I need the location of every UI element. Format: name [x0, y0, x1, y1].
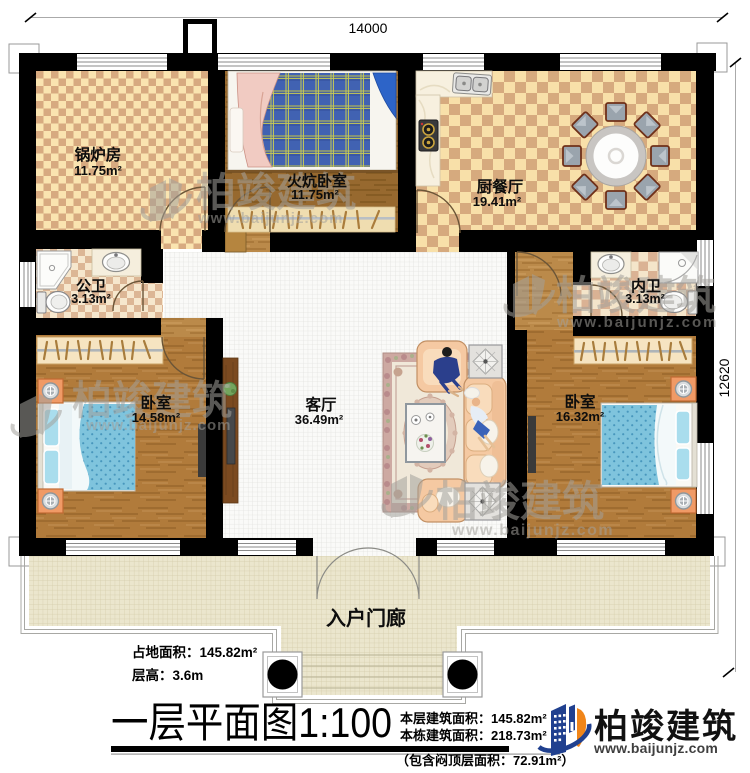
svg-text:19.41m²: 19.41m²: [473, 194, 522, 209]
svg-text:11.75m²: 11.75m²: [291, 187, 339, 202]
svg-text:36.49m²: 36.49m²: [295, 412, 344, 427]
svg-text:柏竣建筑: 柏竣建筑: [436, 478, 604, 525]
svg-text:3.13m²: 3.13m²: [71, 292, 111, 306]
svg-text:11.75m²: 11.75m²: [74, 163, 122, 178]
svg-text:12620: 12620: [716, 358, 732, 397]
svg-text:占地面积：145.82m²: 占地面积：145.82m²: [132, 644, 258, 660]
svg-text:3.13m²: 3.13m²: [625, 292, 665, 306]
svg-text:www.baijunjz.com: www.baijunjz.com: [451, 522, 614, 539]
svg-text:16.32m²: 16.32m²: [556, 409, 605, 424]
svg-text:锅炉房: 锅炉房: [75, 145, 122, 164]
svg-text:入户门廊: 入户门廊: [326, 606, 406, 630]
svg-text:14.58m²: 14.58m²: [132, 410, 181, 425]
svg-text:一层平面图1:100: 一层平面图1:100: [111, 699, 392, 746]
svg-text:层高：3.6m: 层高：3.6m: [132, 667, 203, 683]
svg-text:www.baijunjz.com: www.baijunjz.com: [593, 740, 718, 756]
svg-text:www.baijunjz.com: www.baijunjz.com: [197, 210, 343, 227]
svg-text:（包含闷顶层面积：72.91m²）: （包含闷顶层面积：72.91m²）: [396, 753, 574, 768]
svg-text:本栋建筑面积：218.73m²: 本栋建筑面积：218.73m²: [400, 728, 547, 743]
svg-text:14000: 14000: [349, 20, 388, 36]
svg-text:www.baijunjz.com: www.baijunjz.com: [556, 314, 718, 331]
svg-text:本层建筑面积：145.82m²: 本层建筑面积：145.82m²: [400, 711, 547, 726]
